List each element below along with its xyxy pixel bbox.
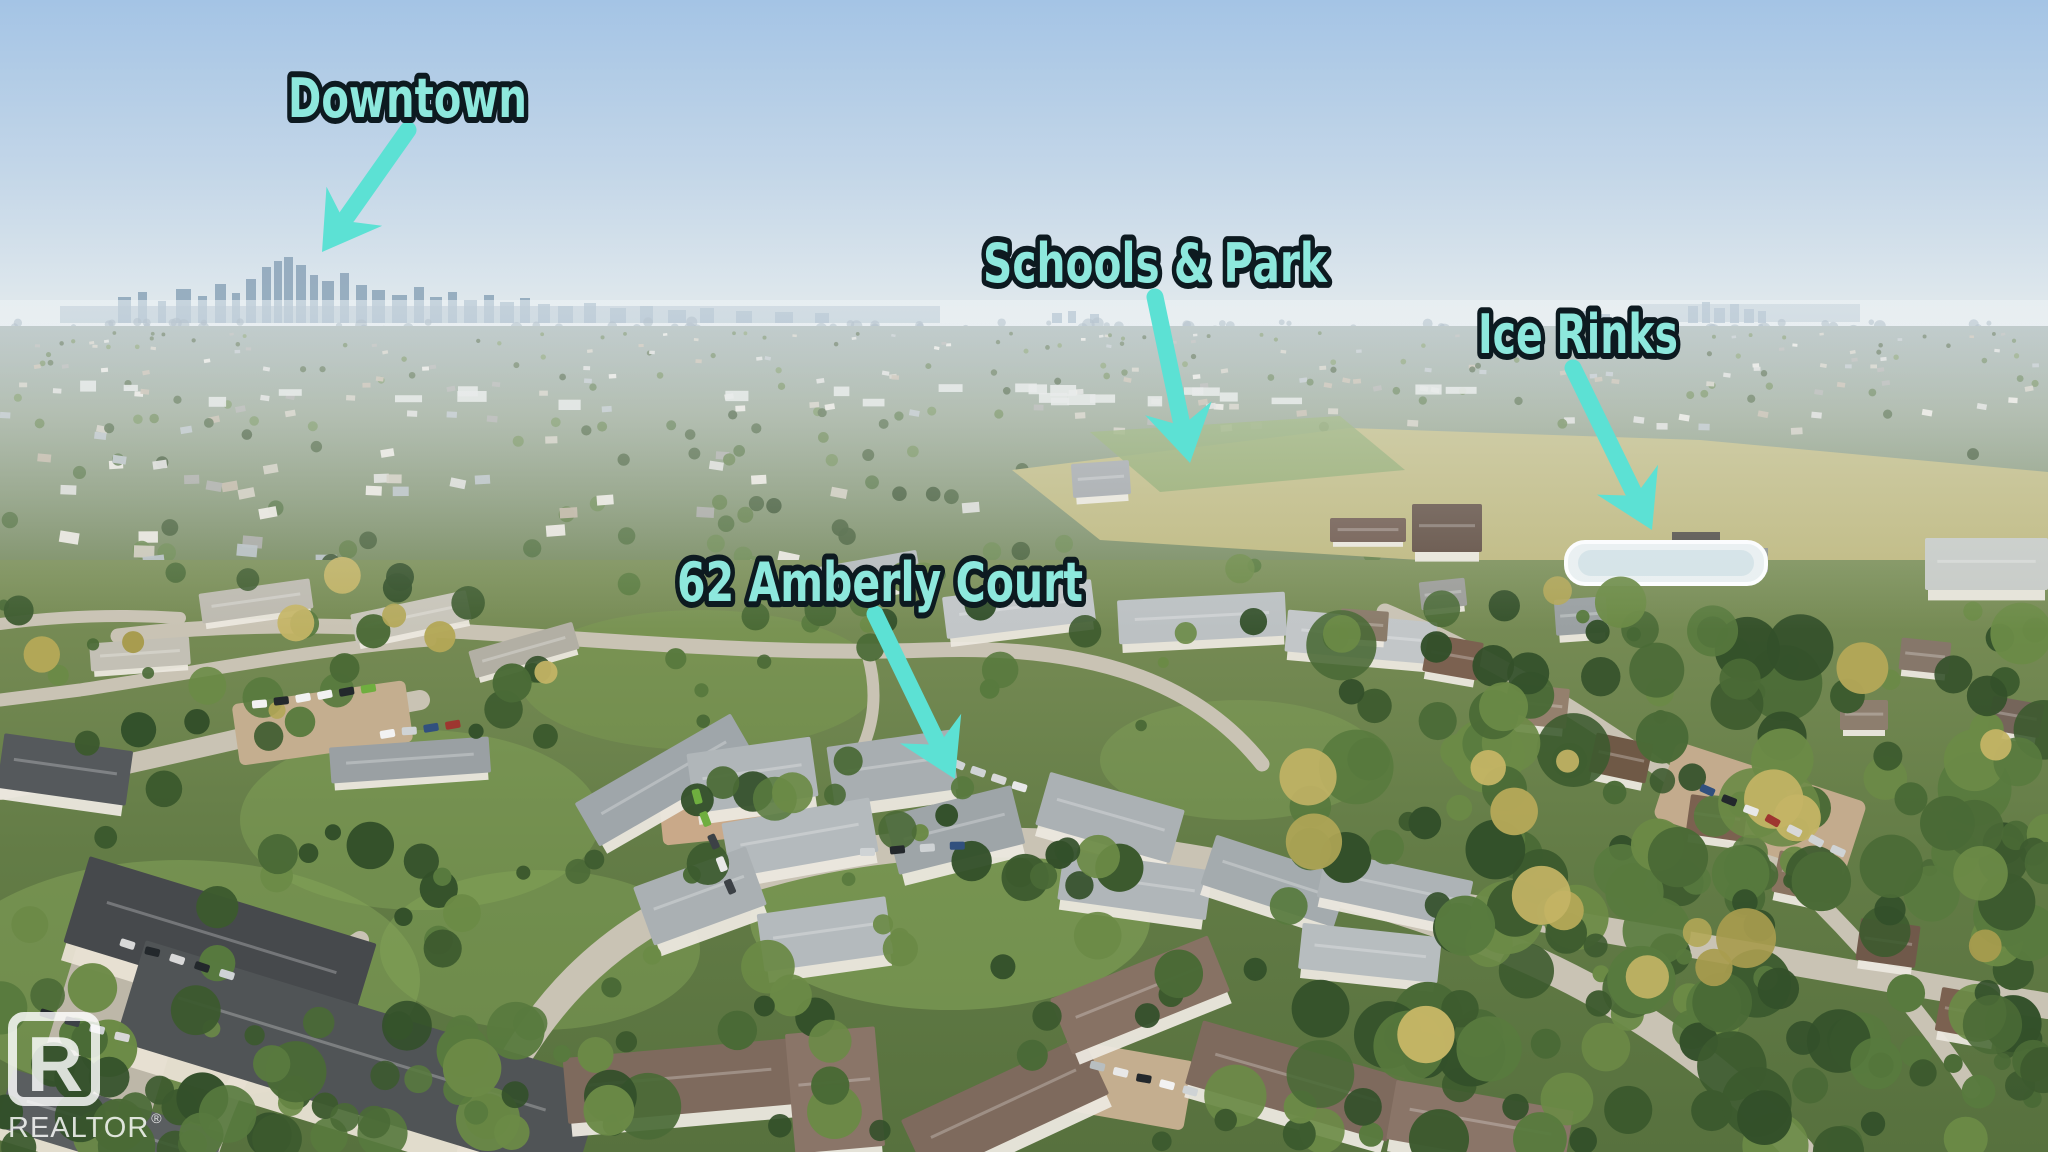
tree bbox=[718, 1011, 757, 1050]
tree bbox=[842, 872, 856, 886]
tree bbox=[258, 834, 298, 874]
realtor-watermark: R REALTOR® bbox=[8, 1012, 163, 1143]
tree bbox=[68, 963, 117, 1012]
tree bbox=[94, 826, 117, 849]
aerial-photo: Downtown Schools & Park Ice Rinks 62 Amb… bbox=[0, 0, 2048, 1152]
realtor-brand-text: REALTOR® bbox=[8, 1114, 163, 1143]
tree bbox=[741, 940, 795, 994]
tree bbox=[1604, 1086, 1652, 1134]
tree bbox=[433, 868, 451, 886]
tree bbox=[253, 1045, 290, 1082]
tree bbox=[330, 1103, 359, 1132]
tree bbox=[1074, 912, 1122, 960]
property-label: 62 Amberly Court bbox=[677, 551, 1083, 614]
tree bbox=[1244, 958, 1267, 981]
tree bbox=[142, 667, 154, 679]
tree bbox=[1471, 750, 1506, 785]
tree bbox=[347, 822, 394, 869]
realtor-logo-icon: R bbox=[8, 1012, 100, 1106]
tree bbox=[404, 1065, 432, 1093]
car bbox=[950, 842, 965, 850]
car bbox=[252, 699, 268, 708]
tree bbox=[1479, 682, 1528, 731]
tree bbox=[1055, 837, 1081, 863]
tree bbox=[1397, 1006, 1454, 1063]
tree bbox=[1636, 711, 1689, 764]
tree bbox=[1292, 980, 1350, 1038]
downtown-label: Downtown bbox=[288, 67, 527, 130]
tree bbox=[1623, 897, 1691, 965]
tree bbox=[665, 648, 686, 669]
tree bbox=[122, 631, 144, 653]
tree bbox=[1076, 835, 1120, 879]
tree bbox=[1030, 862, 1057, 889]
tree bbox=[1435, 896, 1495, 956]
tree bbox=[808, 1020, 851, 1063]
tree bbox=[824, 784, 846, 806]
tree bbox=[1472, 645, 1514, 687]
tree bbox=[935, 804, 958, 827]
tree bbox=[694, 683, 708, 697]
realtor-logo-letter: R bbox=[27, 1033, 81, 1097]
tree bbox=[834, 746, 863, 775]
tree bbox=[982, 652, 1018, 688]
tree bbox=[1279, 748, 1336, 805]
tree bbox=[990, 954, 1015, 979]
tree bbox=[1792, 1067, 1828, 1103]
tree bbox=[184, 709, 209, 734]
tree bbox=[1586, 990, 1612, 1016]
tree bbox=[1963, 995, 2022, 1054]
tree bbox=[1344, 1088, 1382, 1126]
tree bbox=[1556, 750, 1579, 773]
tree bbox=[1339, 679, 1365, 705]
tree bbox=[1994, 1053, 2011, 1070]
tree bbox=[1967, 676, 2008, 717]
tree bbox=[516, 866, 530, 880]
tree bbox=[1603, 781, 1627, 805]
tree bbox=[1456, 1016, 1521, 1081]
tree bbox=[196, 886, 238, 928]
tree bbox=[299, 843, 319, 863]
tree bbox=[1584, 933, 1608, 957]
tree bbox=[199, 1085, 257, 1143]
tree bbox=[1369, 830, 1404, 865]
ice-rinks-label: Ice Rinks bbox=[1478, 303, 1678, 366]
tree bbox=[285, 707, 315, 737]
tree bbox=[1490, 788, 1538, 836]
tree bbox=[188, 667, 226, 705]
tree bbox=[1152, 1132, 1172, 1152]
tree bbox=[1537, 713, 1611, 787]
tree bbox=[878, 811, 916, 849]
tree bbox=[502, 1081, 529, 1108]
tree bbox=[873, 914, 893, 934]
tree bbox=[30, 978, 65, 1013]
tree bbox=[464, 1100, 488, 1124]
tree bbox=[382, 1001, 432, 1051]
tree bbox=[768, 1114, 792, 1138]
tree bbox=[584, 850, 604, 870]
tree bbox=[1962, 1075, 1996, 1109]
tree bbox=[424, 929, 462, 967]
tree bbox=[1032, 1001, 1061, 1030]
tree bbox=[1421, 631, 1452, 662]
tree bbox=[1980, 729, 2011, 760]
tree bbox=[1683, 918, 1712, 947]
tree bbox=[1650, 768, 1675, 793]
tree bbox=[1359, 1122, 1383, 1146]
tree bbox=[1697, 1031, 1767, 1101]
tree bbox=[1874, 894, 1905, 925]
schools-park-label: Schools & Park bbox=[983, 232, 1328, 295]
tree bbox=[811, 1066, 849, 1104]
tree bbox=[1969, 929, 2002, 962]
tree bbox=[1920, 796, 1975, 851]
tree bbox=[1792, 852, 1851, 911]
tree bbox=[1887, 974, 1925, 1012]
tree bbox=[1909, 1059, 1936, 1086]
tree bbox=[1719, 659, 1760, 700]
tree bbox=[330, 653, 360, 683]
tree bbox=[1502, 1094, 1529, 1121]
tree bbox=[1409, 807, 1442, 840]
tree bbox=[1861, 1112, 1885, 1136]
tree bbox=[325, 824, 341, 840]
tree bbox=[370, 1061, 399, 1090]
tree bbox=[1695, 949, 1732, 986]
tree bbox=[757, 655, 771, 669]
tree bbox=[1850, 1038, 1902, 1090]
tree bbox=[616, 1031, 637, 1052]
tree bbox=[358, 1106, 391, 1139]
tree bbox=[75, 731, 100, 756]
tree bbox=[1944, 1054, 1963, 1073]
tree bbox=[146, 771, 183, 808]
tree bbox=[1737, 1090, 1792, 1145]
tree bbox=[121, 712, 156, 747]
tree bbox=[1531, 1029, 1561, 1059]
tree bbox=[1214, 1109, 1236, 1131]
tree bbox=[754, 996, 775, 1017]
tree bbox=[1135, 1003, 1160, 1028]
tree bbox=[1286, 814, 1342, 870]
tree bbox=[1934, 655, 1972, 693]
realtor-brand-word: REALTOR bbox=[8, 1112, 149, 1144]
tree bbox=[583, 1085, 634, 1136]
car bbox=[402, 727, 417, 736]
car bbox=[920, 843, 935, 852]
tree bbox=[553, 1045, 570, 1062]
car bbox=[860, 848, 875, 856]
tree bbox=[534, 661, 557, 684]
tree bbox=[1894, 782, 1927, 815]
tree bbox=[1155, 950, 1204, 999]
tree bbox=[772, 772, 813, 813]
tree bbox=[443, 1039, 501, 1097]
tree bbox=[394, 908, 412, 926]
aerial-scene: Downtown Schools & Park Ice Rinks 62 Amb… bbox=[0, 0, 2048, 1152]
tree bbox=[869, 1120, 890, 1141]
tree bbox=[1270, 887, 1308, 925]
tree bbox=[303, 1007, 334, 1038]
tree bbox=[1446, 795, 1472, 821]
tree bbox=[1758, 968, 1800, 1010]
registered-symbol: ® bbox=[151, 1110, 162, 1126]
tree bbox=[87, 638, 99, 650]
tree bbox=[1860, 835, 1923, 898]
tree bbox=[1953, 846, 2008, 901]
tree bbox=[493, 663, 532, 702]
tree bbox=[244, 1025, 264, 1045]
tree bbox=[1005, 858, 1034, 887]
tree bbox=[1158, 657, 1169, 668]
tree bbox=[443, 894, 481, 932]
tree bbox=[643, 946, 662, 965]
tree bbox=[468, 724, 483, 739]
tree bbox=[24, 636, 60, 672]
tree bbox=[1626, 955, 1669, 998]
tree bbox=[1873, 742, 1902, 771]
tree bbox=[951, 776, 974, 799]
tree bbox=[1419, 702, 1457, 740]
tree bbox=[601, 977, 621, 997]
tree bbox=[1629, 643, 1684, 698]
tree bbox=[1017, 1040, 1048, 1071]
tree bbox=[254, 722, 283, 751]
tree bbox=[171, 985, 221, 1035]
tree bbox=[578, 1037, 614, 1073]
tree bbox=[890, 928, 909, 947]
tree bbox=[1581, 657, 1620, 696]
tree bbox=[533, 724, 558, 749]
tree bbox=[1648, 827, 1708, 887]
tree bbox=[1836, 642, 1888, 694]
tree bbox=[11, 906, 48, 943]
car bbox=[890, 845, 906, 854]
tree bbox=[1135, 720, 1147, 732]
tree bbox=[696, 714, 710, 728]
tree bbox=[1582, 1023, 1631, 1072]
tree bbox=[1512, 866, 1571, 925]
tree bbox=[1287, 1040, 1355, 1108]
